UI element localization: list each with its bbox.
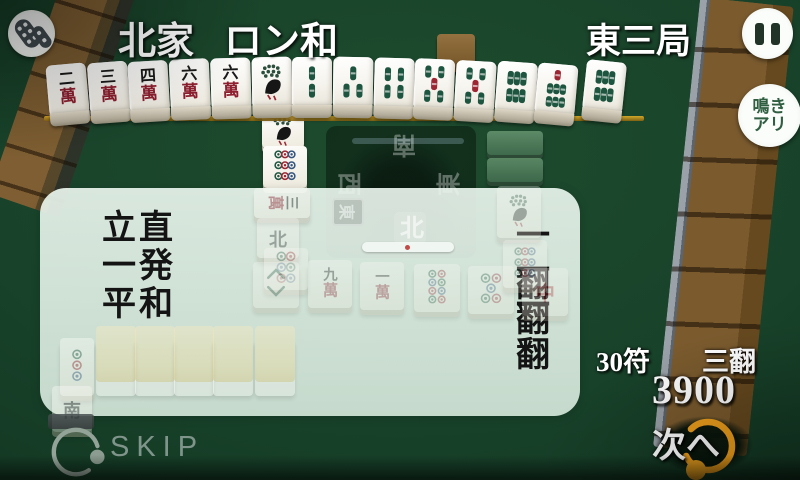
ghost-tile-back-green [487,158,543,182]
win-type-label: ロン和 [224,10,338,65]
ghost-tile-back-yellow [213,326,253,382]
ghost-tile-back-yellow [255,326,295,382]
tile-side [413,106,454,121]
ghost-tile-8s [253,262,299,308]
hand-tile-1s [251,57,292,119]
tile-side [453,107,494,122]
tile-face [535,62,579,115]
hand-tile-6s [493,61,537,125]
center-wind-south: 南 [392,132,416,156]
win-announcement: 北家 ロン和 [118,10,338,65]
pause-icon [755,23,764,45]
round-marker: 東 [332,198,364,226]
tile-side [493,108,534,124]
pause-button[interactable] [742,8,793,59]
pause-icon [771,23,780,45]
tile-face: 六萬 [210,58,251,109]
hand-tile-6m: 六萬 [169,58,212,121]
tile-face [582,59,627,113]
skip-timer-ring-icon [48,424,106,480]
hand-tile-3s [332,57,373,119]
skip-label: SKIP [110,431,204,464]
tile-face [454,59,497,111]
calls-allowed-toggle[interactable]: 鳴き アリ [738,84,800,147]
ghost-tile-8p [414,264,460,312]
tile-side [130,107,171,122]
tile-side [171,106,212,121]
ghost-tile-1m: 一萬 [360,262,404,310]
tile-face [333,57,374,108]
next-button[interactable]: 次へ [642,406,767,480]
ghost-tile-back-yellow [174,326,214,382]
ghost-tile-9m: 九萬 [308,260,352,308]
tile-side [90,108,131,124]
round-label: 東三局 [586,13,691,64]
center-wind-north: 北 [400,217,424,241]
tile-side [581,107,622,124]
tile-side [211,106,251,120]
hand-tile-3m: 三萬 [86,61,130,125]
ghost-tile-back-green [487,131,543,155]
hand-tile-2m: 二萬 [45,62,90,126]
tile-face [413,58,455,110]
naki-label-line2: アリ [753,116,787,134]
tile-side [332,105,372,119]
tile-side [534,110,575,127]
next-label: 次へ [652,418,720,467]
hand-tile-6m: 六萬 [210,58,252,120]
naki-label-line1: 鳴き [753,98,787,116]
ghost-tile-back-yellow [135,326,175,382]
yaku-name-pinfu: 平和 [102,276,176,325]
game-table: 南 西 東 立直 一翻 一発 一翻 平和 一翻 [0,0,800,480]
tile-face [494,61,538,114]
tile-side [373,106,413,120]
ghost-tile-bird [497,186,541,238]
ghost-tile-3m: 三萬 [254,188,310,218]
hand-tile-7s [534,62,579,126]
hand-tile-4s [373,58,415,120]
tile-face: 二萬 [45,62,89,115]
winning-tile-6s [581,59,627,124]
tile-side [292,105,332,118]
skip-button[interactable]: SKIP [48,424,198,480]
ghost-tile-back-yellow [96,326,136,382]
hand-tile-5s [453,59,497,122]
tile-side [252,105,292,119]
tile-face: 六萬 [169,58,211,110]
tile-face [373,58,414,109]
tile-face: 三萬 [86,61,130,114]
ghost-tile-9p [503,240,547,288]
hand-tile-2s [292,57,332,118]
tile-face: 四萬 [128,59,171,111]
fu-value: 30符 [596,340,650,379]
ghost-tile-9p [263,146,307,188]
winner-seat-label: 北家 [118,10,194,65]
hand-tile-5s [413,58,456,121]
hand-tile-4m: 四萬 [128,59,172,122]
dice-menu-button[interactable] [8,10,55,57]
